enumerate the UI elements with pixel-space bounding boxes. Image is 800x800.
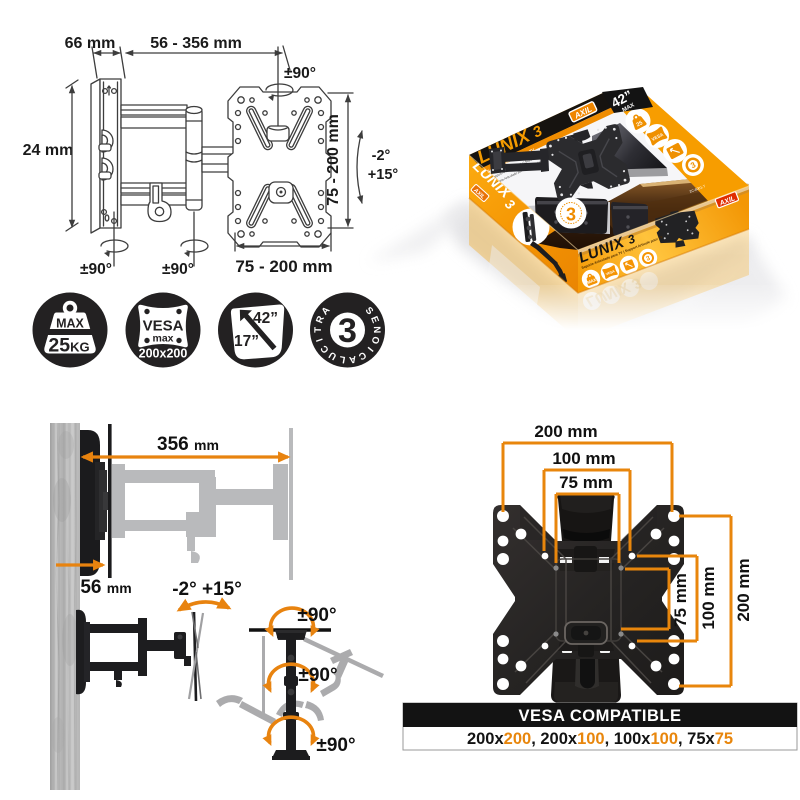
svg-text:75 mm: 75 mm — [671, 573, 690, 627]
svg-text:75 - 200 mm: 75 - 200 mm — [325, 114, 342, 206]
svg-text:±90°: ±90° — [284, 65, 316, 82]
svg-text:VESA COMPATIBLE: VESA COMPATIBLE — [518, 707, 681, 725]
svg-text:17”: 17” — [234, 333, 259, 350]
svg-text:42”: 42” — [253, 310, 278, 327]
svg-text:max: max — [152, 333, 173, 345]
svg-text:±90°: ±90° — [298, 665, 337, 686]
svg-text:75 - 200 mm: 75 - 200 mm — [235, 257, 332, 276]
svg-text:±90°: ±90° — [316, 735, 355, 756]
svg-text:±90°: ±90° — [162, 261, 194, 278]
svg-text:MAX: MAX — [56, 317, 84, 331]
svg-text:75 mm: 75 mm — [559, 473, 613, 492]
svg-text:-2°: -2° — [372, 148, 391, 164]
svg-text:66 mm: 66 mm — [65, 35, 116, 52]
svg-text:±90°: ±90° — [80, 261, 112, 278]
svg-text:56 - 356 mm: 56 - 356 mm — [150, 35, 242, 52]
svg-text:200 mm: 200 mm — [534, 422, 597, 441]
svg-text:56 mm: 56 mm — [80, 577, 131, 598]
svg-text:3: 3 — [566, 205, 576, 225]
svg-text:200x200: 200x200 — [139, 347, 188, 361]
svg-text:-2° +15°: -2° +15° — [172, 579, 242, 600]
svg-text:3: 3 — [338, 312, 357, 350]
svg-text:T: T — [313, 327, 324, 333]
svg-text:356 mm: 356 mm — [157, 434, 219, 455]
svg-text:+15°: +15° — [368, 167, 399, 183]
svg-text:24 mm: 24 mm — [23, 142, 74, 159]
svg-text:100 mm: 100 mm — [699, 566, 718, 629]
svg-text:100 mm: 100 mm — [552, 449, 615, 468]
svg-text:200x200, 200x100, 100x100, 75x: 200x200, 200x100, 100x100, 75x75 — [467, 730, 733, 748]
svg-text:N: N — [371, 326, 382, 333]
svg-text:±90°: ±90° — [297, 605, 336, 626]
svg-text:200 mm: 200 mm — [734, 558, 753, 621]
